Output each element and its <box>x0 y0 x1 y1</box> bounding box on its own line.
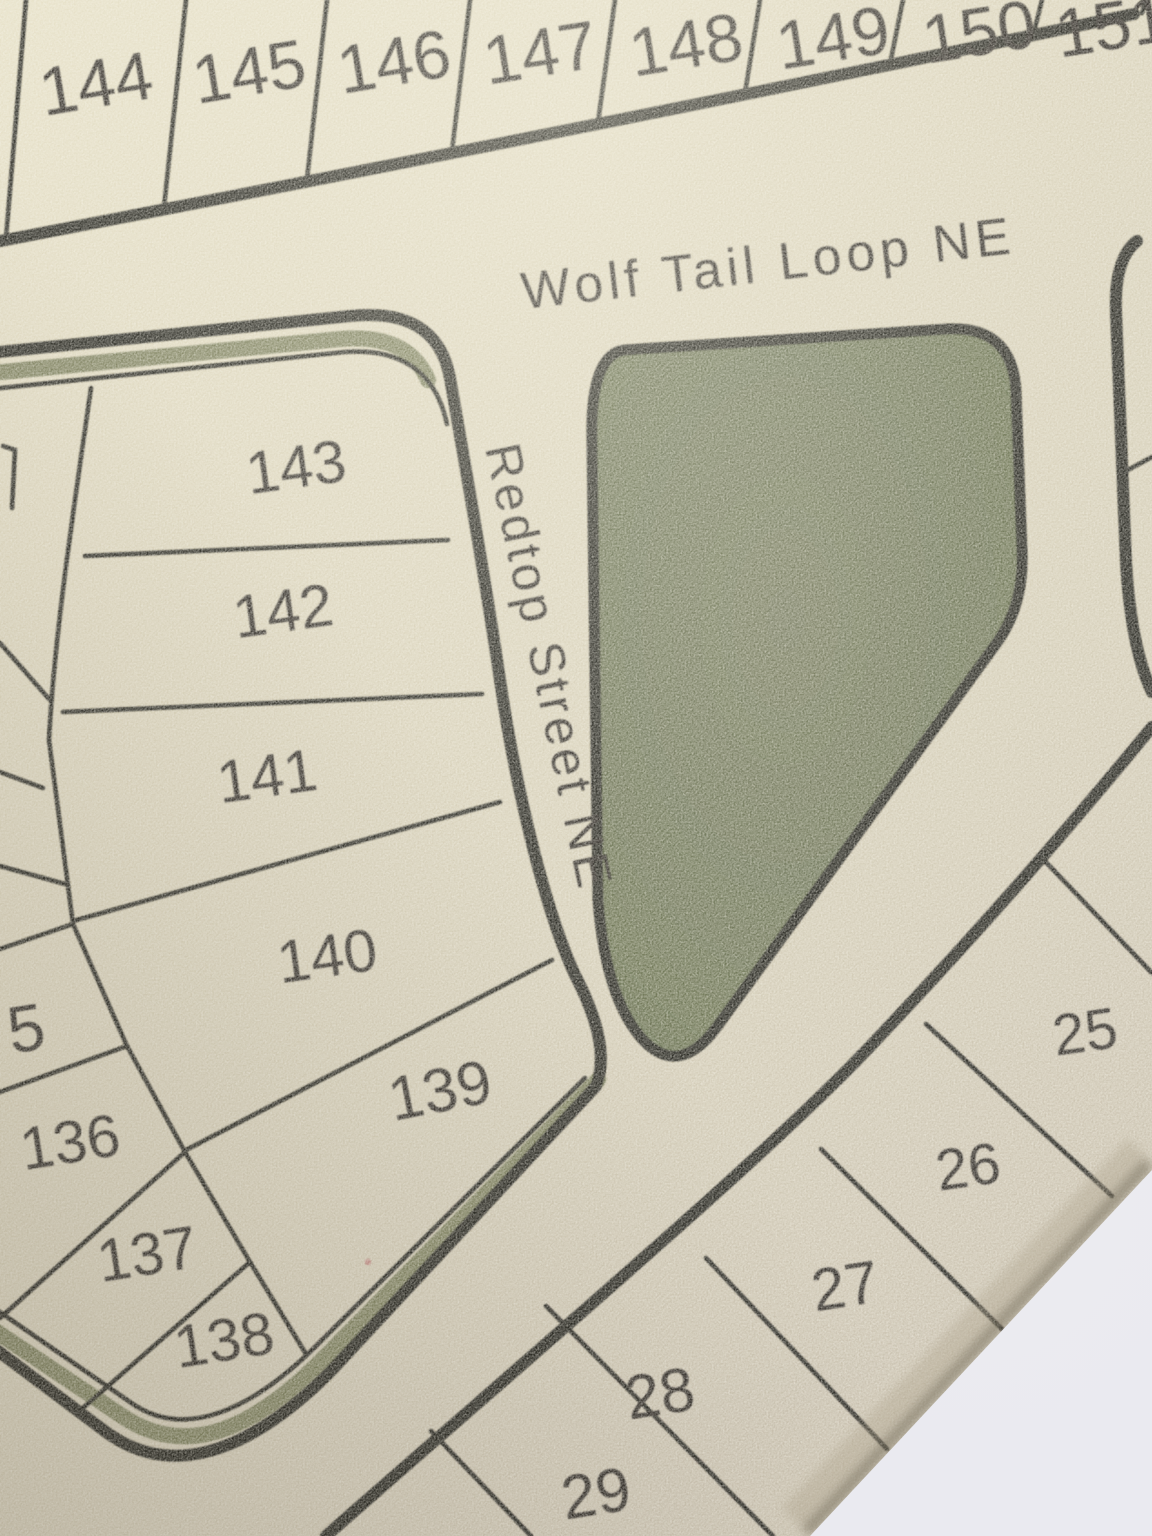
plat-map-svg: 144 145 146 147 148 149 150 151 143 142 … <box>0 0 1152 1536</box>
plat-map-photo: 144 145 146 147 148 149 150 151 143 142 … <box>0 0 1152 1536</box>
